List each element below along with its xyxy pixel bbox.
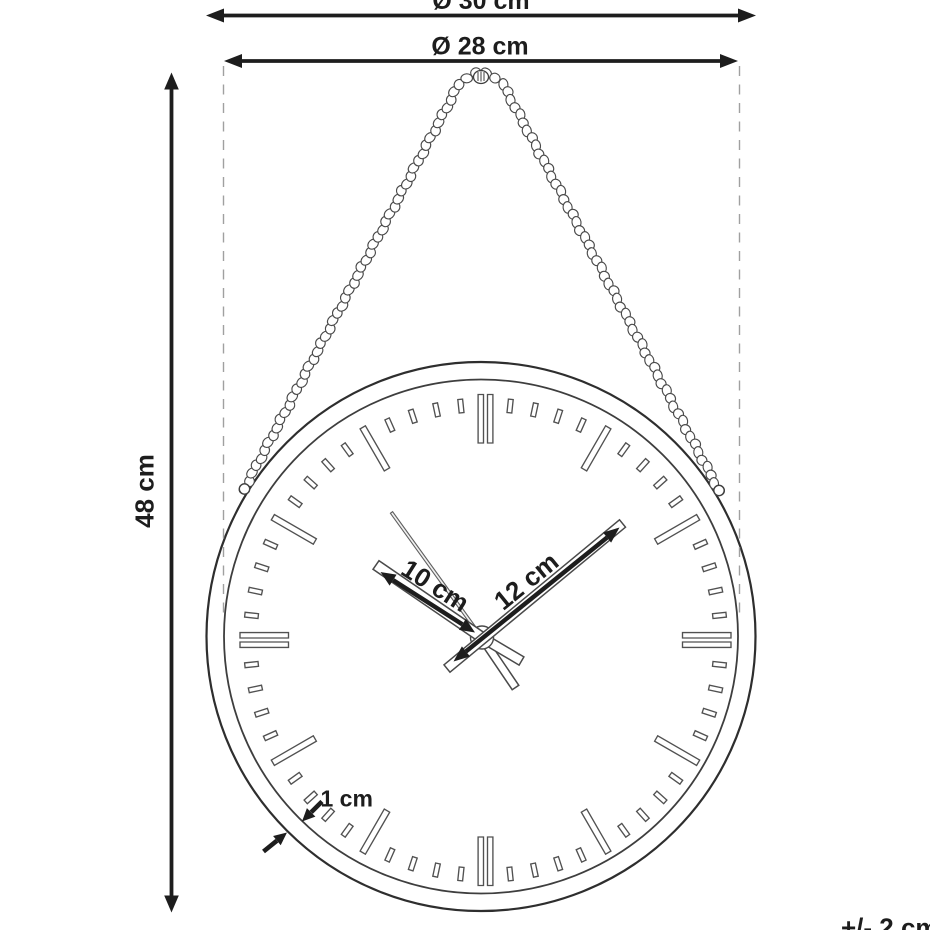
svg-text:Ø 28 cm: Ø 28 cm bbox=[431, 33, 528, 61]
svg-text:1 cm: 1 cm bbox=[321, 786, 373, 812]
svg-text:48 cm: 48 cm bbox=[130, 454, 160, 528]
svg-text:Ø 30 cm: Ø 30 cm bbox=[432, 0, 529, 15]
svg-text:+/- 2 cm: +/- 2 cm bbox=[841, 913, 930, 931]
